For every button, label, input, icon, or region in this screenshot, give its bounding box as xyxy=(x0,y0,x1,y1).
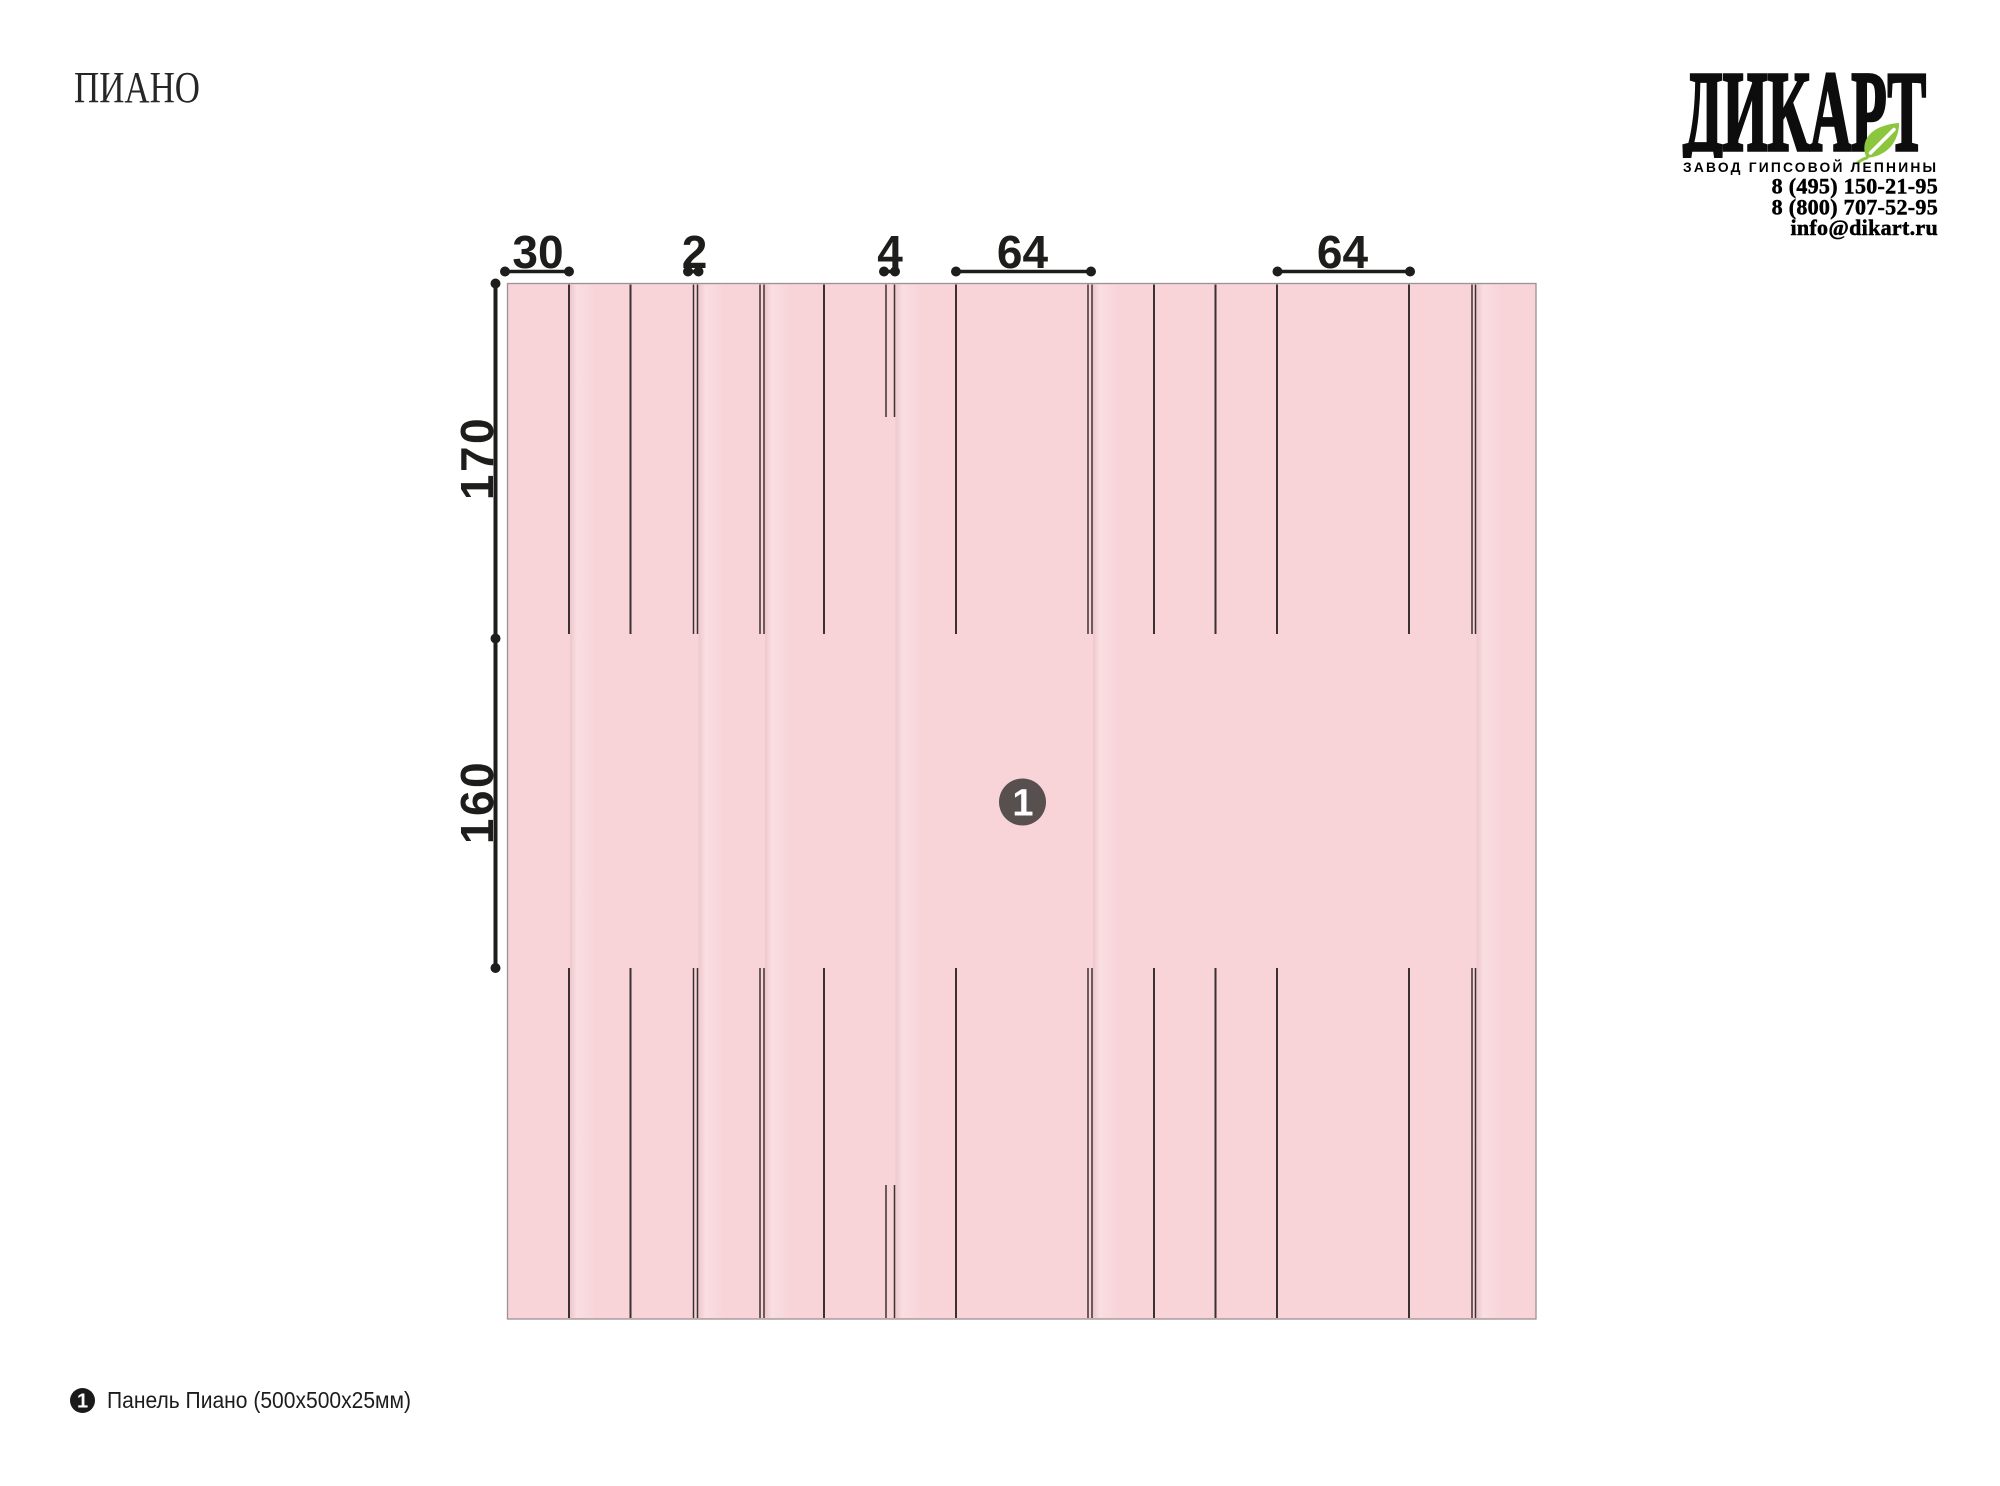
svg-text:info@dikart.ru: info@dikart.ru xyxy=(1790,215,1938,240)
svg-text:ДИКАРТ: ДИКАРТ xyxy=(1683,48,1926,175)
svg-text:ПИАНО: ПИАНО xyxy=(74,63,200,112)
svg-text:ЗАВОД ГИПСОВОЙ ЛЕПНИНЫ: ЗАВОД ГИПСОВОЙ ЛЕПНИНЫ xyxy=(1683,158,1936,175)
svg-text:Панель Пиано (500х500х25мм): Панель Пиано (500х500х25мм) xyxy=(107,1387,411,1413)
svg-text:170: 170 xyxy=(451,416,503,500)
svg-text:30: 30 xyxy=(512,226,563,278)
svg-text:160: 160 xyxy=(451,760,503,844)
svg-text:1: 1 xyxy=(1012,783,1033,825)
svg-text:2: 2 xyxy=(682,226,708,278)
svg-text:64: 64 xyxy=(997,226,1049,278)
svg-text:1: 1 xyxy=(77,1391,88,1413)
svg-text:64: 64 xyxy=(1317,226,1369,278)
svg-text:4: 4 xyxy=(877,226,903,278)
